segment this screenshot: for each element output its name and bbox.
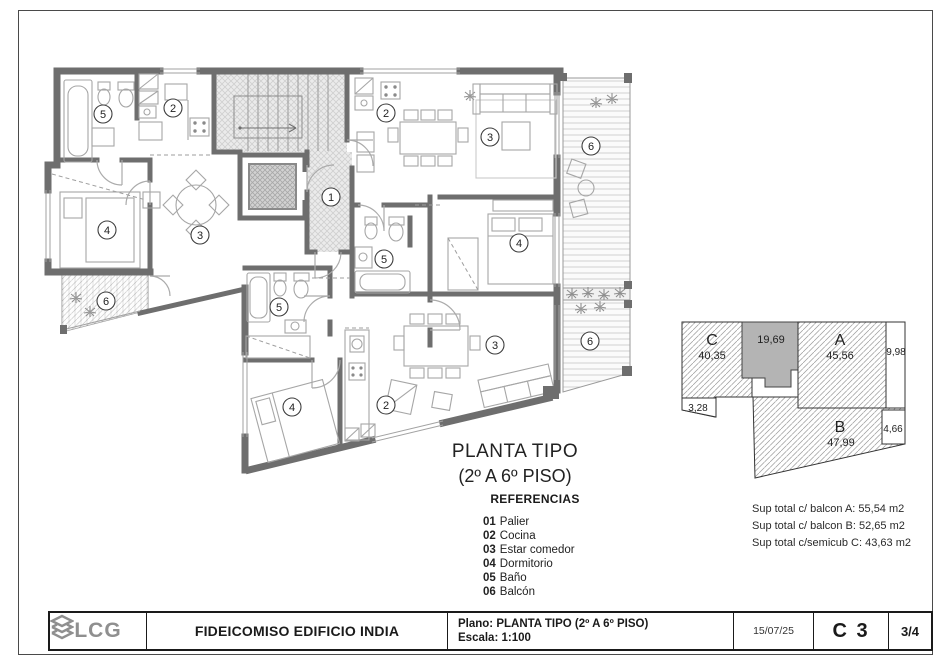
references-heading: REFERENCIAS: [455, 492, 615, 506]
total-b: Sup total c/ balcon B: 52,65 m2: [752, 518, 911, 535]
svg-text:5: 5: [381, 254, 387, 266]
room-label: 1: [322, 188, 340, 206]
svg-text:2: 2: [383, 108, 389, 120]
keyplan-label-c: C: [706, 332, 718, 349]
room-label: 5: [375, 250, 393, 268]
balcony-divider-planter: [563, 287, 630, 300]
reference-item: 04Dormitorio: [483, 557, 615, 571]
lcg-logo-icon: [50, 613, 74, 641]
date-cell: 15/07/25: [733, 613, 813, 649]
reference-item: 03Estar comedor: [483, 543, 615, 557]
bidet-c: [98, 82, 110, 105]
svg-text:3: 3: [197, 230, 203, 242]
svg-text:2: 2: [170, 103, 176, 115]
plano-cell: Plano: PLANTA TIPO (2º A 6º PISO) Escala…: [447, 613, 733, 649]
svg-text:5: 5: [100, 109, 106, 121]
balcony-a-deck: [563, 78, 630, 288]
keyplan-common-core: [742, 322, 798, 387]
unit-b-furniture: [246, 273, 606, 462]
keyplan-area-998: 9,98: [886, 347, 906, 358]
total-a: Sup total c/ balcon A: 55,54 m2: [752, 501, 911, 518]
plan-title-line2: (2º A 6º PISO): [415, 466, 615, 487]
vanity-c: [92, 128, 114, 146]
room-label: 6: [581, 332, 599, 350]
room-label: 5: [270, 298, 288, 316]
keyplan-label-a: A: [835, 332, 846, 349]
keyplan-strip-right: [886, 322, 905, 408]
key-plan: C 40,35 19,69 A 45,56 9,98 3,28 B 47,99 …: [682, 322, 906, 478]
kitchen-b: [345, 330, 417, 441]
dining-table-b: [394, 314, 480, 378]
project-name: FIDEICOMISO EDIFICIO INDIA: [146, 613, 447, 649]
logo-cell: LCG: [50, 613, 146, 649]
room-label: 4: [283, 398, 301, 416]
logo-text: LCG: [74, 619, 121, 643]
svg-text:4: 4: [516, 238, 522, 250]
keyplan-area-b: 47,99: [827, 437, 855, 449]
plan-title: PLANTA TIPO (2º A 6º PISO): [415, 441, 615, 487]
svg-text:4: 4: [104, 225, 110, 237]
room-label: 3: [481, 128, 499, 146]
total-c: Sup total c/semicub C: 43,63 m2: [752, 535, 911, 552]
plano-line: Plano: PLANTA TIPO (2º A 6º PISO): [458, 617, 648, 631]
drawing-sheet: 5 2 3 4 6 1 2 3 4 5 6 5 4 2 3 6: [0, 0, 947, 670]
sheet-code: C 3: [813, 613, 888, 649]
stairwell: [214, 73, 347, 152]
reference-item: 02Cocina: [483, 529, 615, 543]
keyplan-area-328: 3,28: [688, 403, 708, 414]
title-block: LCG FIDEICOMISO EDIFICIO INDIA Plano: PL…: [48, 611, 933, 651]
svg-text:3: 3: [492, 340, 498, 352]
keyplan-area-466: 4,66: [883, 424, 903, 435]
svg-text:6: 6: [588, 141, 594, 153]
keyplan-area-a: 45,56: [826, 350, 854, 362]
escala-line: Escala: 1:100: [458, 631, 531, 645]
room-label: 2: [164, 99, 182, 117]
keyplan-area-common: 19,69: [757, 334, 785, 346]
reference-item: 01Palier: [483, 515, 615, 529]
svg-text:6: 6: [587, 336, 593, 348]
room-label: 2: [377, 104, 395, 122]
keyplan-label-b: B: [835, 419, 846, 436]
svg-text:5: 5: [276, 302, 282, 314]
room-label: 4: [510, 234, 528, 252]
bathtub-c: [64, 80, 92, 162]
room-label: 6: [97, 292, 115, 310]
room-label: 2: [377, 396, 395, 414]
svg-text:2: 2: [383, 400, 389, 412]
plan-title-line1: PLANTA TIPO: [415, 441, 615, 463]
room-label: 3: [486, 336, 504, 354]
bedroom-a: [448, 200, 553, 290]
surface-totals: Sup total c/ balcon A: 55,54 m2 Sup tota…: [752, 501, 911, 552]
reference-item: 06Balcón: [483, 585, 615, 599]
elevator: [240, 155, 307, 218]
references-legend: REFERENCIAS 01Palier 02Cocina 03Estar co…: [455, 492, 615, 599]
kitchen-a: [355, 78, 400, 172]
keyplan-area-c: 40,35: [698, 350, 726, 362]
armchair-b: [432, 392, 453, 411]
svg-text:3: 3: [487, 132, 493, 144]
toilet-c: [118, 82, 134, 107]
room-label: 6: [582, 137, 600, 155]
room-label: 4: [98, 221, 116, 239]
reference-item: 05Baño: [483, 571, 615, 585]
svg-text:6: 6: [103, 296, 109, 308]
svg-text:1: 1: [328, 192, 334, 204]
room-label: 5: [94, 105, 112, 123]
svg-text:4: 4: [289, 402, 295, 414]
dining-table-a: [388, 110, 468, 166]
room-label: 3: [191, 226, 209, 244]
page-number: 3/4: [888, 613, 931, 649]
